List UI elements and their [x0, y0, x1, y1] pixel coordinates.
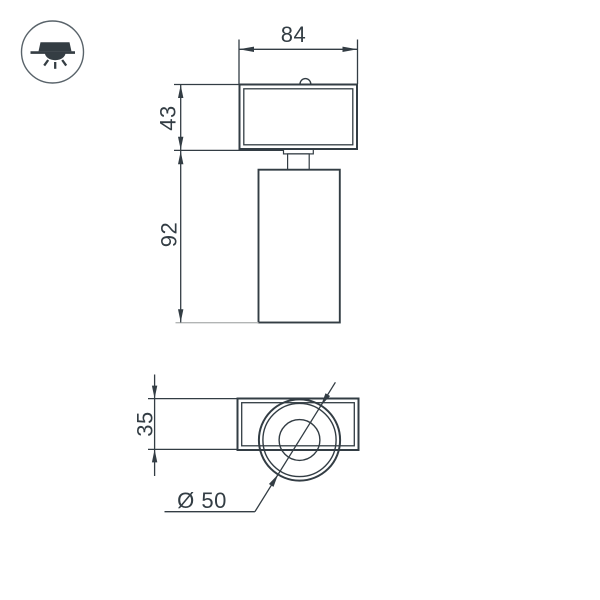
head-knob — [300, 79, 311, 84]
lamp-body — [259, 170, 340, 323]
dim-label-diameter: Ø 50 — [177, 488, 227, 513]
dim-label-width: 84 — [281, 22, 306, 47]
technical-drawing: 84 43 92 — [0, 0, 600, 600]
dim-label-body-height: 92 — [157, 222, 182, 247]
arrowhead-up-icon — [152, 449, 157, 462]
arrowhead-upright-icon — [269, 474, 278, 487]
swivel-neck — [288, 154, 310, 170]
arrowhead-right-icon — [343, 47, 358, 52]
drawing-canvas: 84 43 92 — [0, 0, 600, 600]
head-box-outer — [240, 85, 358, 150]
bottom-view: 35 Ø 50 — [133, 375, 359, 514]
dim-depth — [148, 375, 238, 477]
dim-label-head-height: 43 — [156, 105, 181, 130]
arrowhead-up-icon — [178, 85, 183, 98]
front-view: 84 43 92 — [156, 22, 358, 323]
icon-lamp-housing — [39, 42, 72, 51]
dim-label-depth: 35 — [133, 411, 158, 436]
recessed-downlight-icon — [22, 21, 84, 83]
arrowhead-left-icon — [239, 47, 254, 52]
head-box — [240, 79, 358, 170]
arrowhead-down-icon — [178, 137, 183, 150]
dim-heights — [174, 84, 283, 323]
arrowhead-down-icon — [152, 386, 157, 399]
arrowhead-down-icon — [178, 309, 183, 322]
arrowhead-up-icon — [178, 151, 183, 164]
head-box-inner — [244, 89, 353, 145]
